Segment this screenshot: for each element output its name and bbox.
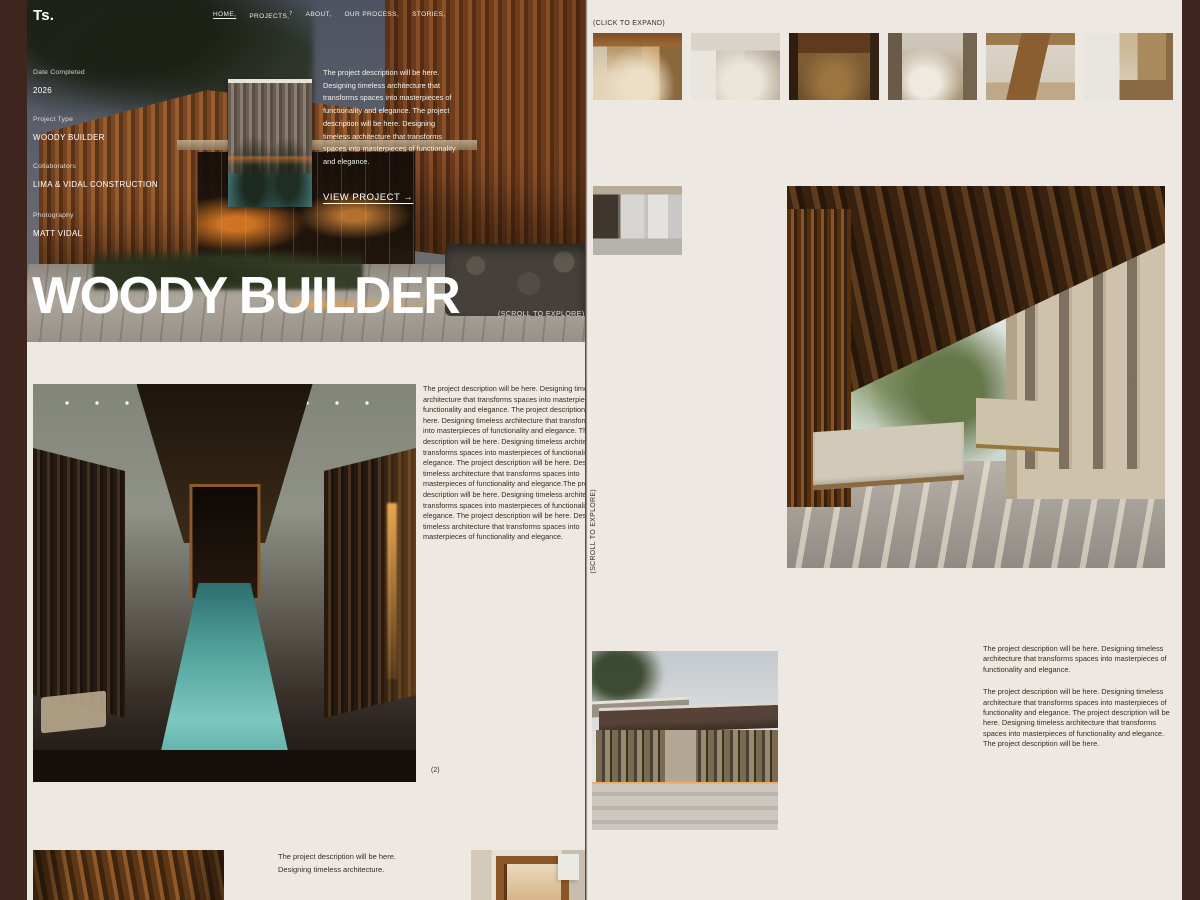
wood-hallway-photo	[33, 850, 224, 900]
pool-right-wall-art	[324, 448, 416, 718]
pool-left-wall-art	[33, 448, 125, 718]
indoor-pool-photo	[33, 384, 416, 782]
nav-item-projects-label: PROJECTS,	[249, 13, 289, 20]
thumbnail-kitchen[interactable]	[986, 33, 1075, 100]
hero-inset-photo	[228, 79, 312, 207]
nav-item-about[interactable]: ABOUT,	[306, 11, 332, 20]
click-to-expand-hint: (CLICK TO EXPAND)	[593, 20, 665, 27]
meta-label: Photography	[33, 212, 82, 219]
right-paragraph-1: The project description will be here. De…	[983, 644, 1175, 675]
thumbnail-living-room[interactable]	[593, 33, 682, 100]
bottom-caption: The project description will be here. De…	[278, 850, 396, 876]
project-title: WOODY BUILDER	[32, 266, 459, 326]
thumbnail-bedroom[interactable]	[691, 33, 780, 100]
meta-project-type: Project Type WOODY BUILDER	[33, 116, 105, 142]
meta-label: Collaborators	[33, 163, 158, 170]
meta-date-completed: Date Completed 2026	[33, 69, 85, 95]
meta-collaborators: Collaborators LIMA & VIDAL CONSTRUCTION	[33, 163, 158, 189]
main-nav: HOME, PROJECTS,7 ABOUT, OUR PROCESS, STO…	[213, 11, 446, 20]
pool-light-glow-art	[387, 503, 397, 678]
meta-value: WOODY BUILDER	[33, 133, 105, 142]
glass-corridor-photo	[593, 186, 682, 255]
meta-label: Date Completed	[33, 69, 85, 76]
nav-item-stories[interactable]: STORIES,	[412, 11, 445, 20]
nav-item-home[interactable]: HOME,	[213, 11, 236, 20]
pool-deck-art	[33, 750, 416, 782]
pergola-terrace-photo	[787, 186, 1165, 568]
meta-label: Project Type	[33, 116, 105, 123]
bottom-caption-line2: Designing timeless architecture.	[278, 863, 396, 876]
nav-projects-count: 7	[289, 11, 292, 17]
hero-description: The project description will be here. De…	[323, 67, 464, 169]
left-page: Ts. HOME, PROJECTS,7 ABOUT, OUR PROCESS,…	[27, 0, 585, 900]
cabinet-cube-art	[558, 854, 580, 880]
pool-doorway-art	[189, 484, 260, 598]
bottom-caption-line1: The project description will be here.	[278, 850, 396, 863]
right-paragraph-2: The project description will be here. De…	[983, 687, 1175, 749]
scroll-to-explore-hint: (SCROLL TO EXPLORE)	[590, 489, 597, 574]
pergola-lounge-chair-art	[976, 398, 1059, 452]
thumbnail-office[interactable]	[1084, 33, 1173, 100]
view-project-link[interactable]: VIEW PROJECT →	[323, 192, 413, 203]
nav-item-projects[interactable]: PROJECTS,7	[249, 11, 292, 20]
thumbnail-bathroom[interactable]	[888, 33, 977, 100]
hero-stone-wall-art	[445, 244, 585, 316]
page-divider	[585, 0, 589, 900]
meta-photography: Photography MATT VIDAL	[33, 212, 82, 238]
house-steps-art	[592, 782, 778, 830]
hero-section: Ts. HOME, PROJECTS,7 ABOUT, OUR PROCESS,…	[27, 0, 585, 342]
pool-couch-art	[41, 691, 106, 734]
image-counter: (2)	[431, 767, 440, 774]
right-description-block: The project description will be here. De…	[983, 644, 1175, 762]
thumbnail-dining-room[interactable]	[789, 33, 878, 100]
hero-scroll-hint: (SCROLL TO EXPLORE)	[498, 311, 584, 318]
meta-value: MATT VIDAL	[33, 229, 82, 238]
pavilion-house-photo	[592, 651, 778, 830]
house-glass-body-art	[596, 730, 778, 782]
meta-value: 2026	[33, 86, 85, 95]
project-body-paragraph: The project description will be here. De…	[423, 384, 585, 543]
nav-item-our-process[interactable]: OUR PROCESS,	[344, 11, 399, 20]
right-page: (CLICK TO EXPAND) (SCROLL TO EXPLORE) Th…	[589, 0, 1182, 900]
meta-value: LIMA & VIDAL CONSTRUCTION	[33, 180, 158, 189]
project-meta: Date Completed 2026 Project Type WOODY B…	[33, 0, 183, 260]
pergola-sofa-art	[813, 421, 964, 490]
pool-water-art	[159, 583, 289, 758]
wood-cabinet-photo	[471, 850, 585, 900]
gallery-thumbnail-row	[593, 33, 1173, 100]
